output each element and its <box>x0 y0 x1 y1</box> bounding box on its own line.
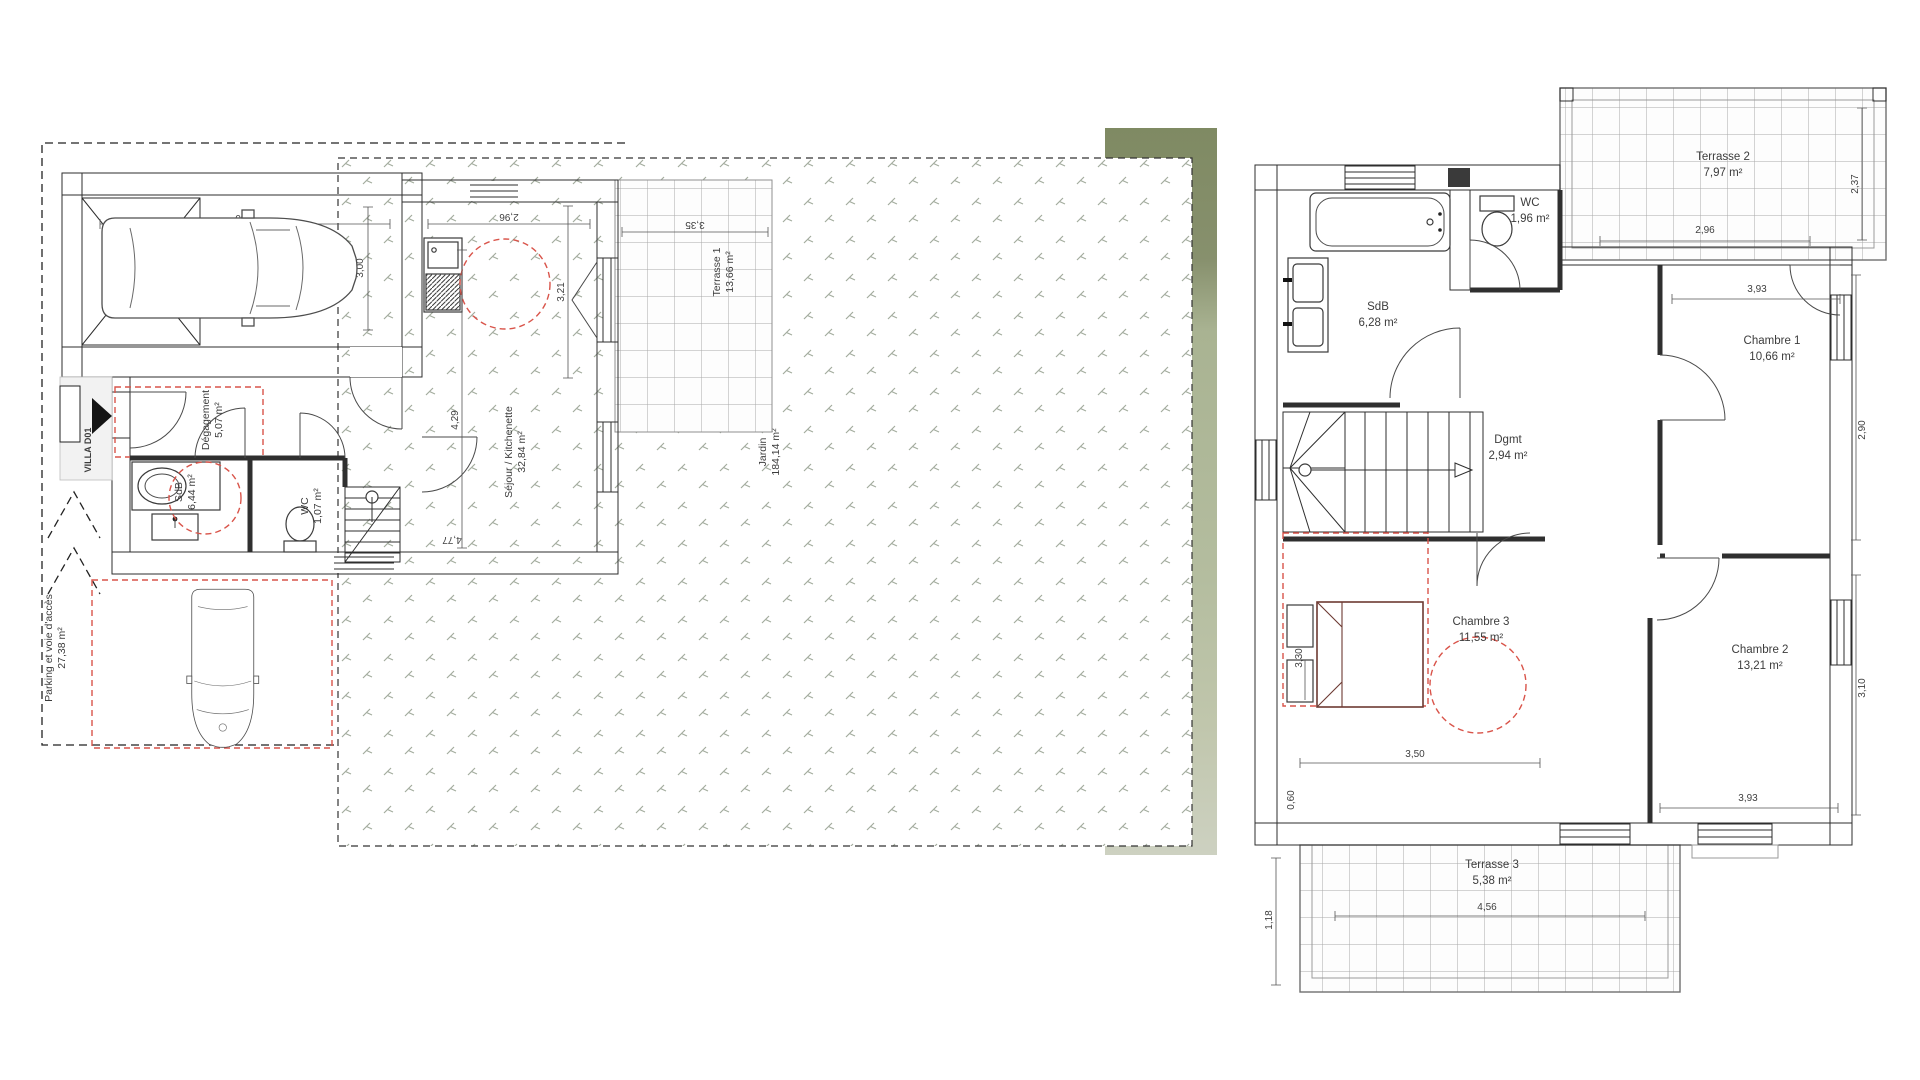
chambre3-label: Chambre 3 <box>1453 616 1510 628</box>
chambre3-room: Chambre 3 11,55 m² 3,30 3,50 0,60 <box>1283 533 1540 810</box>
dim-terrace2-width: 2,96 <box>1695 225 1715 236</box>
terrace2-label: Terrasse 2 <box>1696 151 1750 163</box>
terrace3-label: Terrasse 3 <box>1465 859 1519 871</box>
chambre2-area-value: 13,21 m² <box>1737 660 1783 672</box>
dim-terrace2-depth: 2,37 <box>1850 174 1861 194</box>
villa-tag-label: VILLA D01 <box>83 428 93 473</box>
floor-plan-page: Jardin 184,14 m² Terrasse 1 13,66 m² <box>0 0 1920 1080</box>
dim-chambre3-width: 3,50 <box>1405 749 1425 760</box>
dim-chambre3-bed: 3,30 <box>1294 648 1305 668</box>
parking-label: Parking et voie d'accès <box>43 594 55 702</box>
wc-ground-label: WC <box>299 497 311 515</box>
parking-car <box>187 589 259 747</box>
chambre3-red-circle <box>1430 637 1526 733</box>
garden-label: Jardin <box>757 438 769 467</box>
chambre2-room: Chambre 2 13,21 m² 3,10 3,93 <box>1650 558 1868 823</box>
dim-terrace-width: 3,35 <box>685 219 705 230</box>
sejour-label: Séjour / Kitchenette <box>503 406 515 498</box>
parking-area: Parking et voie d'accès 27,38 m² <box>43 580 332 748</box>
chambre1-label: Chambre 1 <box>1744 335 1801 347</box>
terrace2-area-value: 7,97 m² <box>1704 167 1743 179</box>
sdb-ground-area-value: 6,44 m² <box>186 474 198 510</box>
sdb-upper-room: SdB 6,28 m² <box>1283 193 1460 405</box>
dim-sejour-width: 2,96 <box>499 211 519 222</box>
dim-wall-segment: 0,60 <box>1286 790 1297 810</box>
terrace2: Terrasse 2 7,97 m² 2,37 2,96 <box>1560 88 1886 260</box>
dim-chambre1-depth: 2,90 <box>1857 420 1868 440</box>
chambre3-area-value: 11,55 m² <box>1459 632 1504 644</box>
terrace1-area-value: 13,66 m² <box>724 251 736 293</box>
garden-area-value: 184,14 m² <box>770 428 782 476</box>
dim-sejour-depth: 3,21 <box>556 282 567 302</box>
ground-floor-plan: Jardin 184,14 m² Terrasse 1 13,66 m² <box>42 128 1217 855</box>
dim-chambre2-depth: 3,10 <box>1857 678 1868 698</box>
stairs-upper <box>1283 412 1545 539</box>
dim-chambre2-width: 3,93 <box>1738 793 1758 804</box>
access-chevrons <box>48 492 100 594</box>
floor-plans-drawing: Jardin 184,14 m² Terrasse 1 13,66 m² <box>0 0 1920 1080</box>
wc-upper-label: WC <box>1520 197 1539 209</box>
dim-terrace3-depth: 1,18 <box>1264 910 1275 930</box>
degagement-area-value: 5,07 m² <box>213 402 225 438</box>
dim-terrace3-width: 4,56 <box>1477 902 1497 913</box>
dgmt-area-value: 2,94 m² <box>1489 450 1528 462</box>
terrace3: Terrasse 3 5,38 m² 4,56 1,18 <box>1264 845 1680 992</box>
chambre1-area-value: 10,66 m² <box>1749 351 1795 363</box>
wc-ground-room: WC 1,07 m² <box>284 413 345 552</box>
parking-area-value: 27,38 m² <box>56 627 68 669</box>
dgmt-hall: Dgmt 2,94 m² <box>1477 434 1530 586</box>
dim-sejour-bottom: 4,77 <box>442 534 462 545</box>
sdb-upper-area-value: 6,28 m² <box>1359 317 1398 329</box>
degagement-label: Dégagement <box>200 390 212 450</box>
wc-ground-area-value: 1,07 m² <box>312 488 324 524</box>
terrace1-label: Terrasse 1 <box>711 247 723 296</box>
terrace3-area-value: 5,38 m² <box>1473 875 1512 887</box>
terrace1: Terrasse 1 13,66 m² <box>615 180 772 432</box>
dgmt-label: Dgmt <box>1494 434 1522 446</box>
dim-sejour-length: 4,29 <box>450 410 461 430</box>
chambre2-label: Chambre 2 <box>1732 644 1789 656</box>
sdb-ground-label: SdB <box>173 482 185 502</box>
garage-car <box>102 210 357 326</box>
sejour-area-value: 32,84 m² <box>516 431 528 473</box>
dim-chambre1-width: 3,93 <box>1747 284 1767 295</box>
wc-upper-area-value: 1,96 m² <box>1511 213 1550 225</box>
wc-upper-room: WC 1,96 m² <box>1470 190 1560 290</box>
upper-floor-plan: Terrasse 2 7,97 m² 2,37 2,96 Terrasse 3 … <box>1255 88 1886 992</box>
sdb-upper-label: SdB <box>1367 301 1389 313</box>
degagement-red-zone <box>115 387 263 457</box>
chambre3-bed <box>1287 602 1423 707</box>
